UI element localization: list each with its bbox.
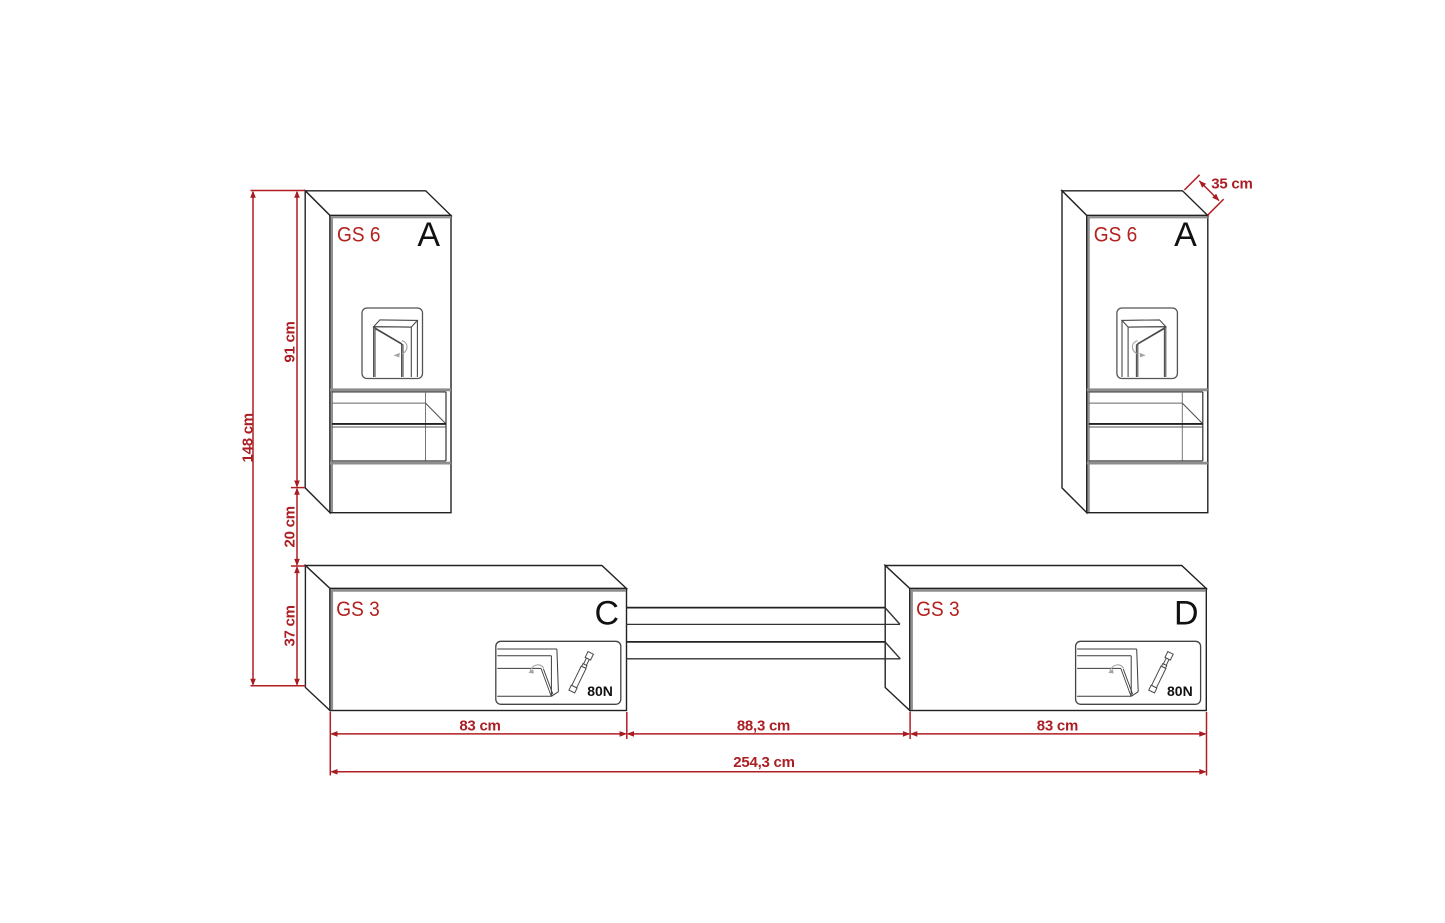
svg-text:C: C xyxy=(594,595,619,633)
svg-text:37 cm: 37 cm xyxy=(281,605,298,646)
svg-text:83 cm: 83 cm xyxy=(459,717,500,734)
svg-text:D: D xyxy=(1174,595,1199,633)
svg-text:88,3 cm: 88,3 cm xyxy=(737,717,790,734)
svg-text:148 cm: 148 cm xyxy=(239,413,256,462)
svg-text:254,3 cm: 254,3 cm xyxy=(733,754,794,771)
svg-text:91 cm: 91 cm xyxy=(281,321,298,362)
svg-text:35 cm: 35 cm xyxy=(1211,175,1252,192)
svg-text:83 cm: 83 cm xyxy=(1037,717,1078,734)
svg-text:20 cm: 20 cm xyxy=(281,506,298,547)
